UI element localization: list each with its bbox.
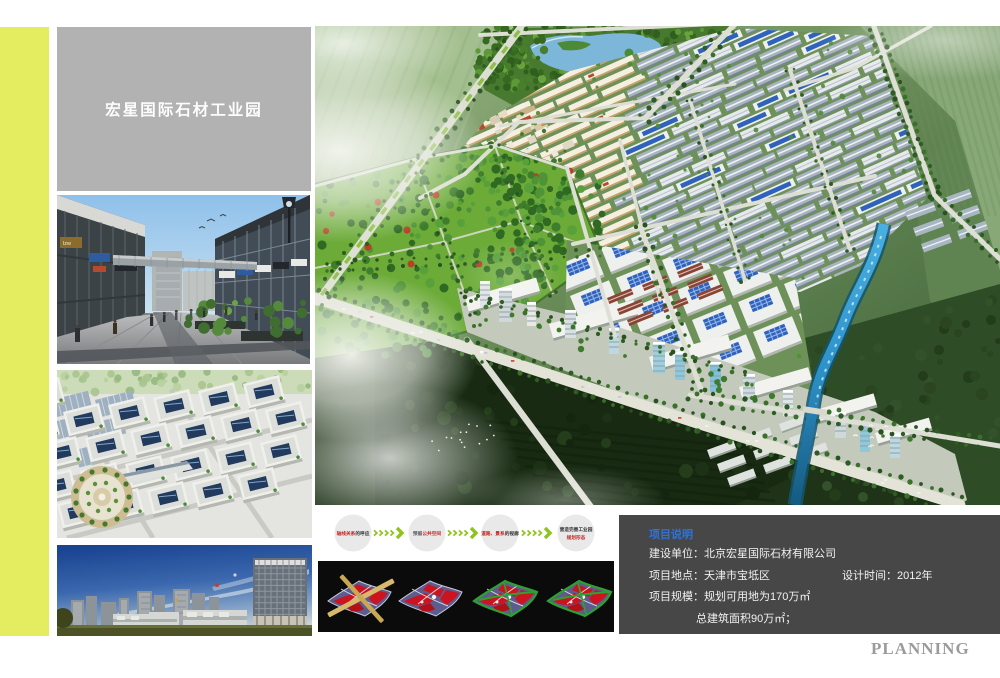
svg-text:规划形态: 规划形态 [567, 534, 586, 541]
svg-text:lzw: lzw [63, 241, 71, 247]
svg-text:营造完善工业园: 营造完善工业园 [560, 526, 593, 533]
svg-text:道路、景系的视廊: 道路、景系的视廊 [481, 530, 519, 537]
svg-text:轴线关系的呼应: 轴线关系的呼应 [337, 530, 370, 537]
svg-text:预留公共空间: 预留公共空间 [413, 530, 441, 537]
